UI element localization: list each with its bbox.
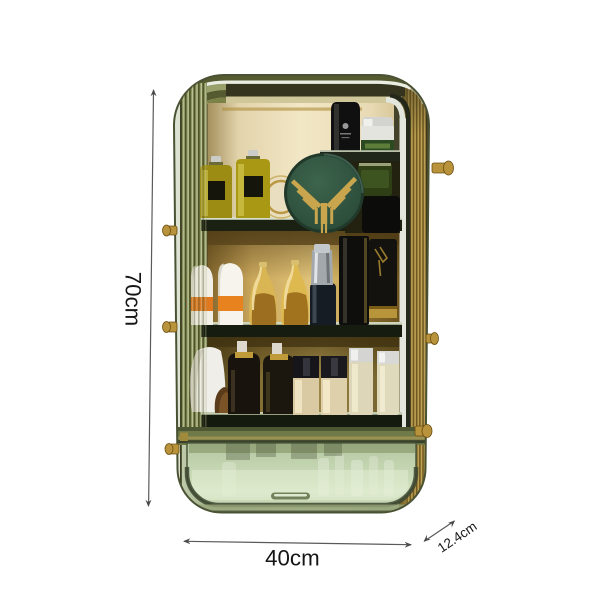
svg-text:40cm: 40cm	[265, 546, 320, 571]
svg-text:12.4cm: 12.4cm	[435, 519, 480, 556]
svg-text:70cm: 70cm	[121, 272, 146, 327]
